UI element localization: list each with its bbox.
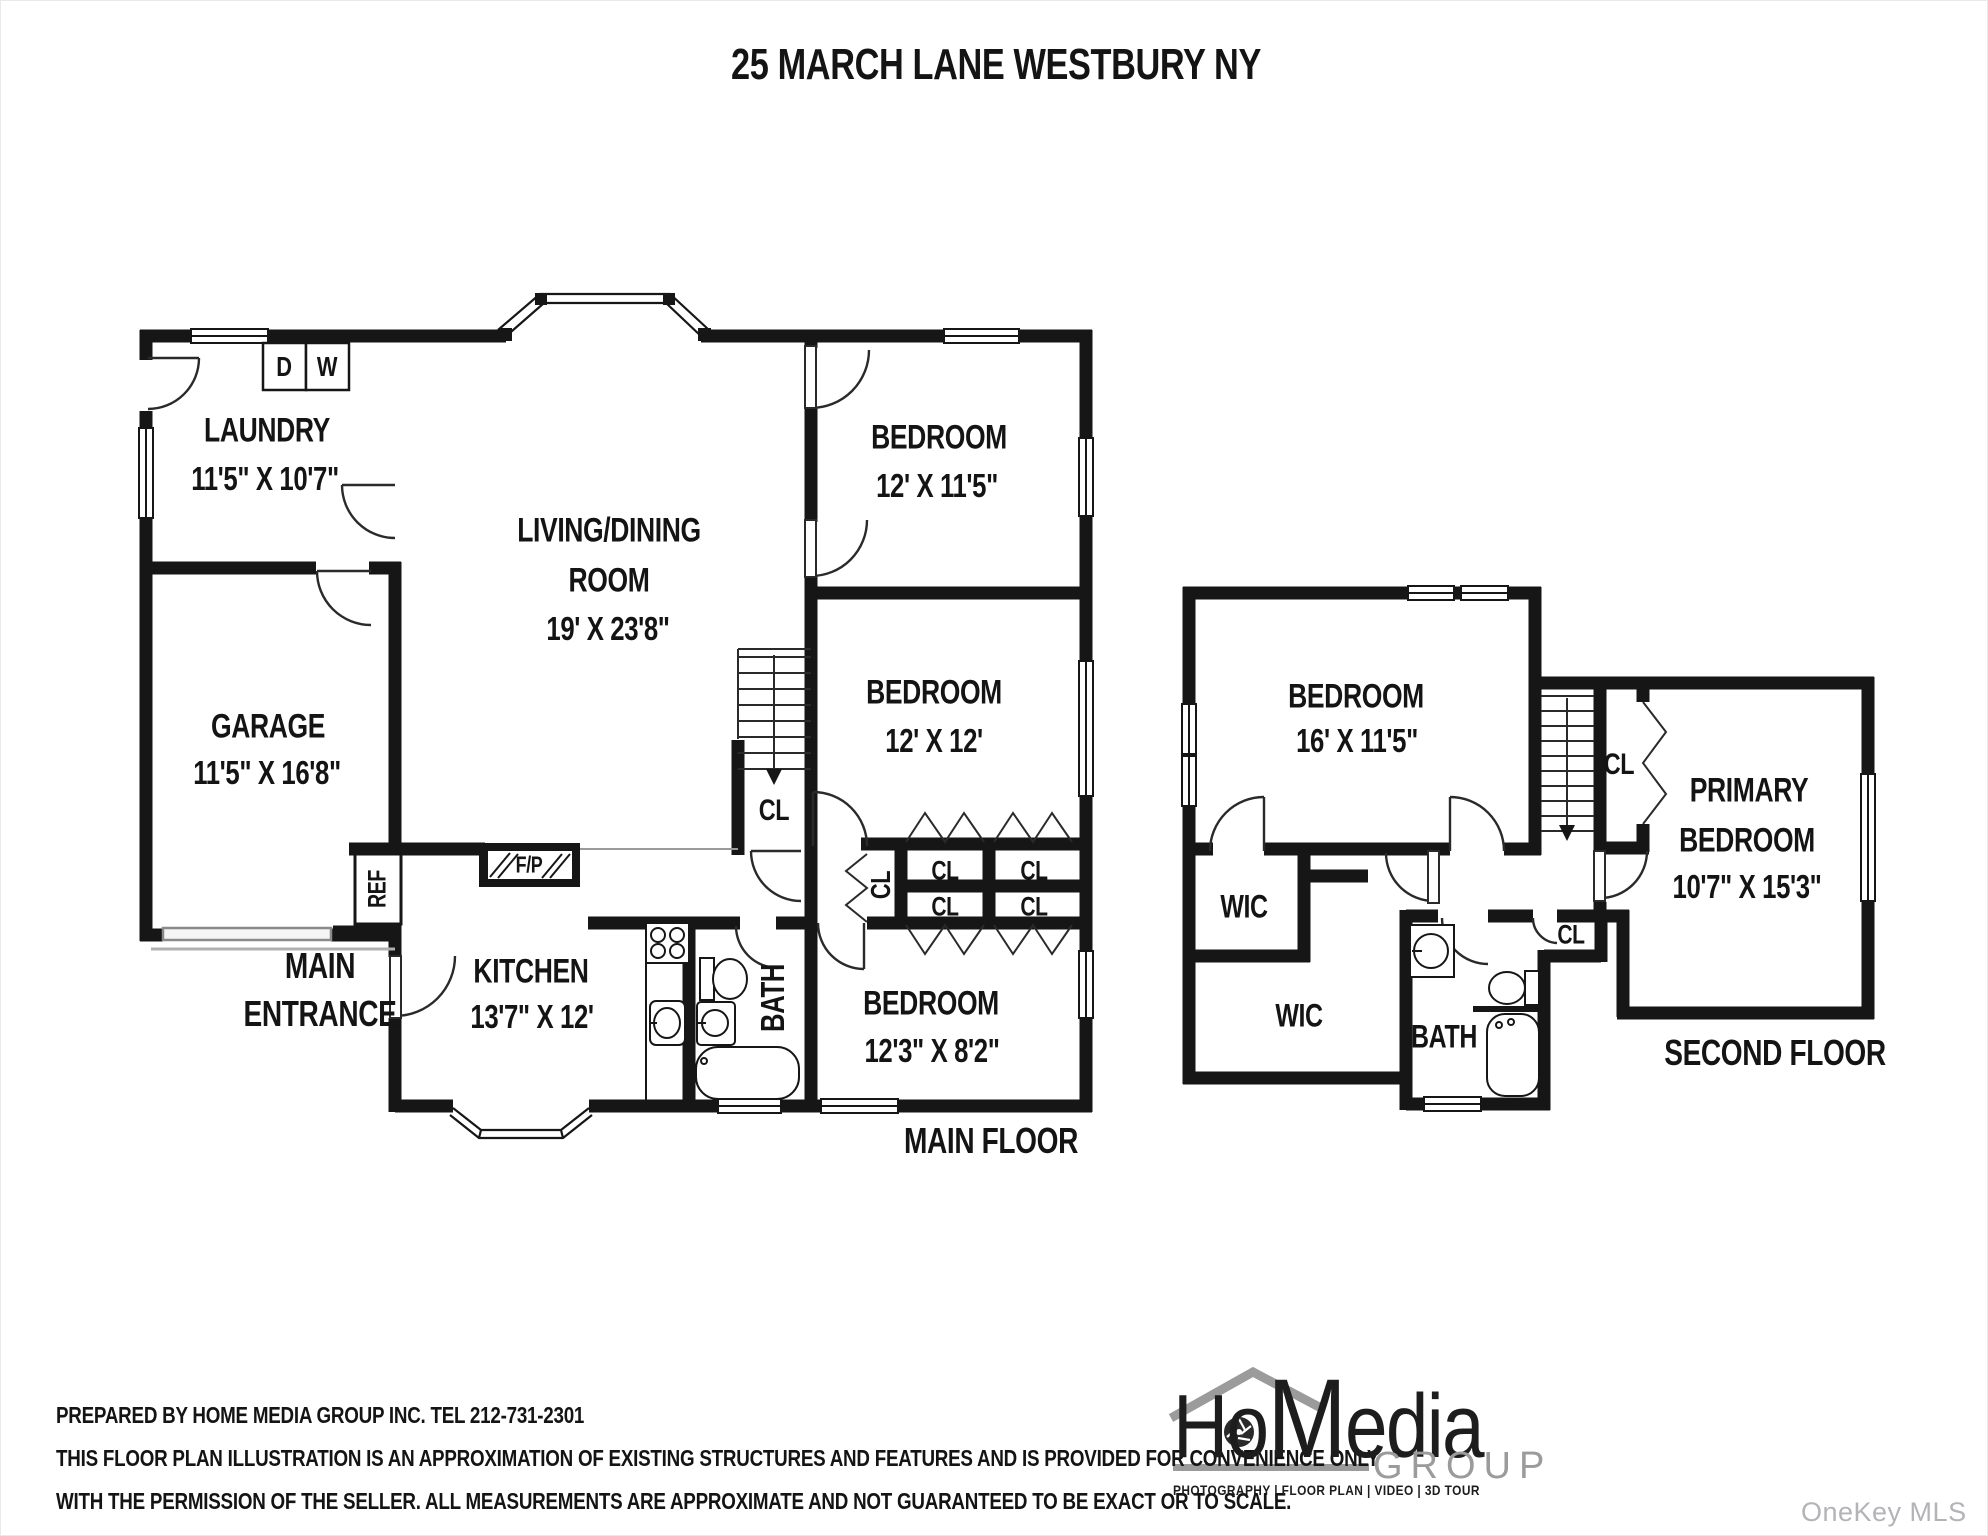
- logo-word-m: M: [1267, 1384, 1345, 1454]
- kitchen-name: KITCHEN: [473, 953, 588, 992]
- laundry-name: LAUNDRY: [204, 412, 330, 451]
- dryer-label: D: [276, 351, 291, 383]
- bedroom1-name: BEDROOM: [871, 419, 1007, 458]
- bay-window-living: [498, 294, 709, 338]
- primary-name-line2: BEDROOM: [1679, 822, 1815, 861]
- closet-label-grid-3: CL: [931, 892, 958, 923]
- closet-label-bath-2f: CL: [1557, 920, 1584, 951]
- page-title: 25 MARCH LANE WESTBURY NY: [731, 40, 1261, 90]
- bedroom2f-dims: 16' X 11'5": [1296, 722, 1418, 760]
- bedroom3-dims: 12'3" X 8'2": [864, 1032, 999, 1070]
- main-floor-label: MAIN FLOOR: [904, 1120, 1078, 1162]
- wic-label-lower: WIC: [1275, 998, 1322, 1035]
- fireplace-label: F/P: [516, 852, 543, 879]
- stove-icon: [646, 923, 689, 963]
- washer-label: W: [317, 351, 337, 383]
- bath-fixtures-second: [1410, 925, 1541, 1096]
- closet-label-hall: CL: [865, 871, 897, 899]
- living-name-line1: LIVING/DINING: [517, 512, 701, 551]
- mls-watermark: OneKey MLS: [1801, 1497, 1967, 1528]
- closet-label-grid-2: CL: [1020, 856, 1047, 887]
- fridge-label: REF: [364, 870, 393, 908]
- stairs-main: [738, 649, 811, 771]
- door-leaves-second: [1428, 851, 1605, 903]
- garage-dims: 11'5" X 16'8": [193, 754, 341, 792]
- living-dims: 19' X 23'8": [546, 610, 669, 648]
- living-name-line2: ROOM: [569, 562, 650, 601]
- bedroom1-dims: 12' X 11'5": [876, 467, 998, 505]
- bath-label-main: BATH: [754, 964, 792, 1032]
- closet-label-grid-4: CL: [1020, 892, 1047, 923]
- bedroom2-dims: 12' X 12': [885, 722, 982, 760]
- kitchen-counter-sink-icon: [646, 963, 685, 1103]
- bath-label-second: BATH: [1411, 1019, 1477, 1056]
- closet-label-stairs: CL: [759, 794, 789, 828]
- logo-word-ho: Ho: [1173, 1392, 1267, 1462]
- stairs-second-arrow: [1559, 825, 1575, 841]
- footer-line-1: PREPARED BY HOME MEDIA GROUP INC. TEL 21…: [56, 1402, 584, 1429]
- bay-window-kitchen: [450, 1108, 592, 1138]
- second-floor-label: SECOND FLOOR: [1664, 1032, 1886, 1074]
- bedroom3-name: BEDROOM: [863, 985, 999, 1024]
- logo-tagline: PHOTOGRAPHY | FLOOR PLAN | VIDEO | 3D TO…: [1173, 1482, 1480, 1498]
- closet-label-stairs-2f: CL: [1604, 748, 1634, 782]
- kitchen-dims: 13'7" X 12': [470, 998, 593, 1036]
- bifold-doors-second: [1643, 702, 1666, 824]
- main-entrance-line2: ENTRANCE: [244, 993, 397, 1035]
- primary-dims: 10'7" X 15'3": [1673, 868, 1822, 906]
- bedroom2-name: BEDROOM: [866, 674, 1002, 713]
- stairs-main-arrow: [766, 769, 782, 785]
- primary-name-line1: PRIMARY: [1690, 772, 1809, 811]
- closet-label-grid-1: CL: [931, 856, 958, 887]
- garage-door: [163, 928, 331, 940]
- footer-line-3: WITH THE PERMISSION OF THE SELLER. ALL M…: [56, 1488, 1291, 1515]
- bedroom2f-name: BEDROOM: [1288, 678, 1424, 717]
- laundry-dims: 11'5" X 10'7": [191, 460, 339, 498]
- wic-label-upper: WIC: [1220, 889, 1267, 926]
- stairs-second: [1541, 696, 1594, 831]
- floor-plan-page: 25 MARCH LANE WESTBURY NY D W LAUNDRY 11…: [0, 0, 1988, 1536]
- garage-name: GARAGE: [211, 708, 325, 747]
- main-entrance-line1: MAIN: [285, 945, 355, 987]
